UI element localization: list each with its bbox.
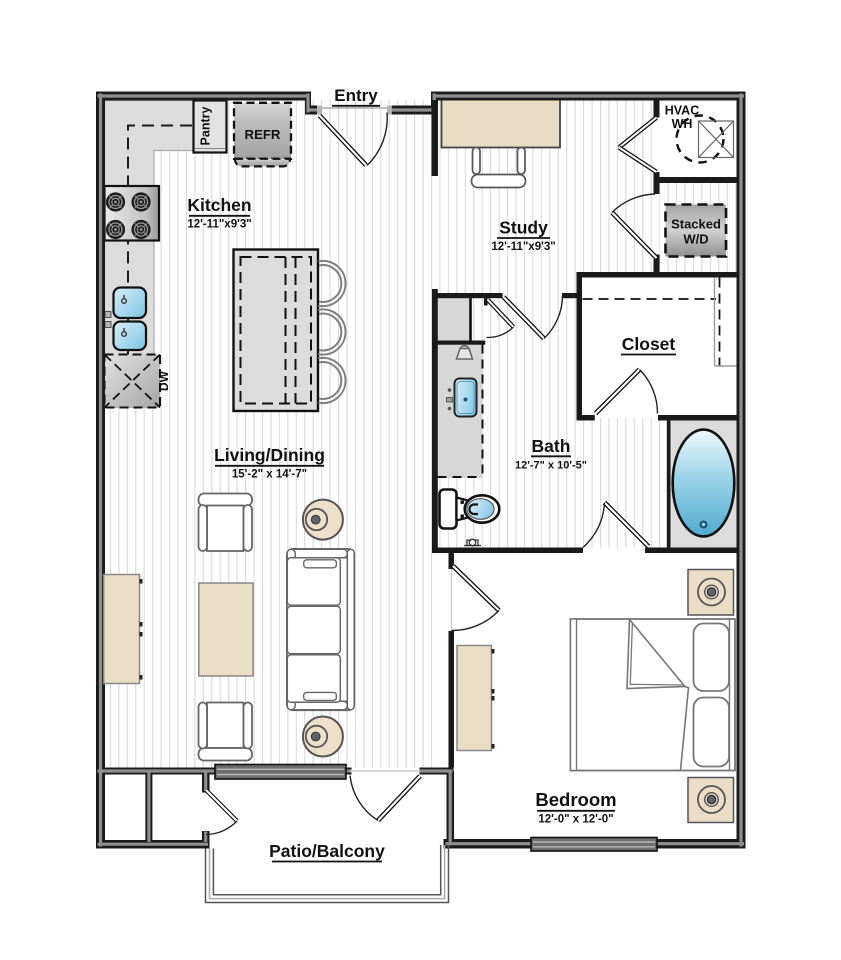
svg-text:12'-7" x 10'-5": 12'-7" x 10'-5" — [515, 460, 587, 472]
svg-text:Kitchen: Kitchen — [187, 195, 251, 215]
svg-text:Stacked: Stacked — [671, 217, 721, 232]
svg-text:Entry: Entry — [334, 86, 378, 105]
svg-text:Study: Study — [499, 218, 548, 238]
svg-text:12'-11"x9'3": 12'-11"x9'3" — [187, 219, 251, 231]
svg-text:HVAC: HVAC — [665, 104, 700, 118]
svg-text:12'-11"x9'3": 12'-11"x9'3" — [491, 241, 555, 253]
svg-text:Closet: Closet — [622, 334, 676, 354]
svg-text:Bedroom: Bedroom — [535, 789, 616, 810]
svg-text:WH: WH — [672, 117, 693, 131]
svg-text:W/D: W/D — [683, 232, 708, 247]
svg-text:Living/Dining: Living/Dining — [214, 445, 325, 465]
svg-text:12'-0" x 12'-0": 12'-0" x 12'-0" — [538, 814, 613, 826]
svg-text:Bath: Bath — [532, 436, 571, 456]
svg-text:15'-2" x 14'-7": 15'-2" x 14'-7" — [232, 469, 307, 481]
svg-text:REFR: REFR — [245, 127, 281, 142]
svg-text:Pantry: Pantry — [199, 107, 213, 146]
svg-text:DW: DW — [157, 370, 171, 391]
svg-text:Patio/Balcony: Patio/Balcony — [269, 841, 385, 861]
